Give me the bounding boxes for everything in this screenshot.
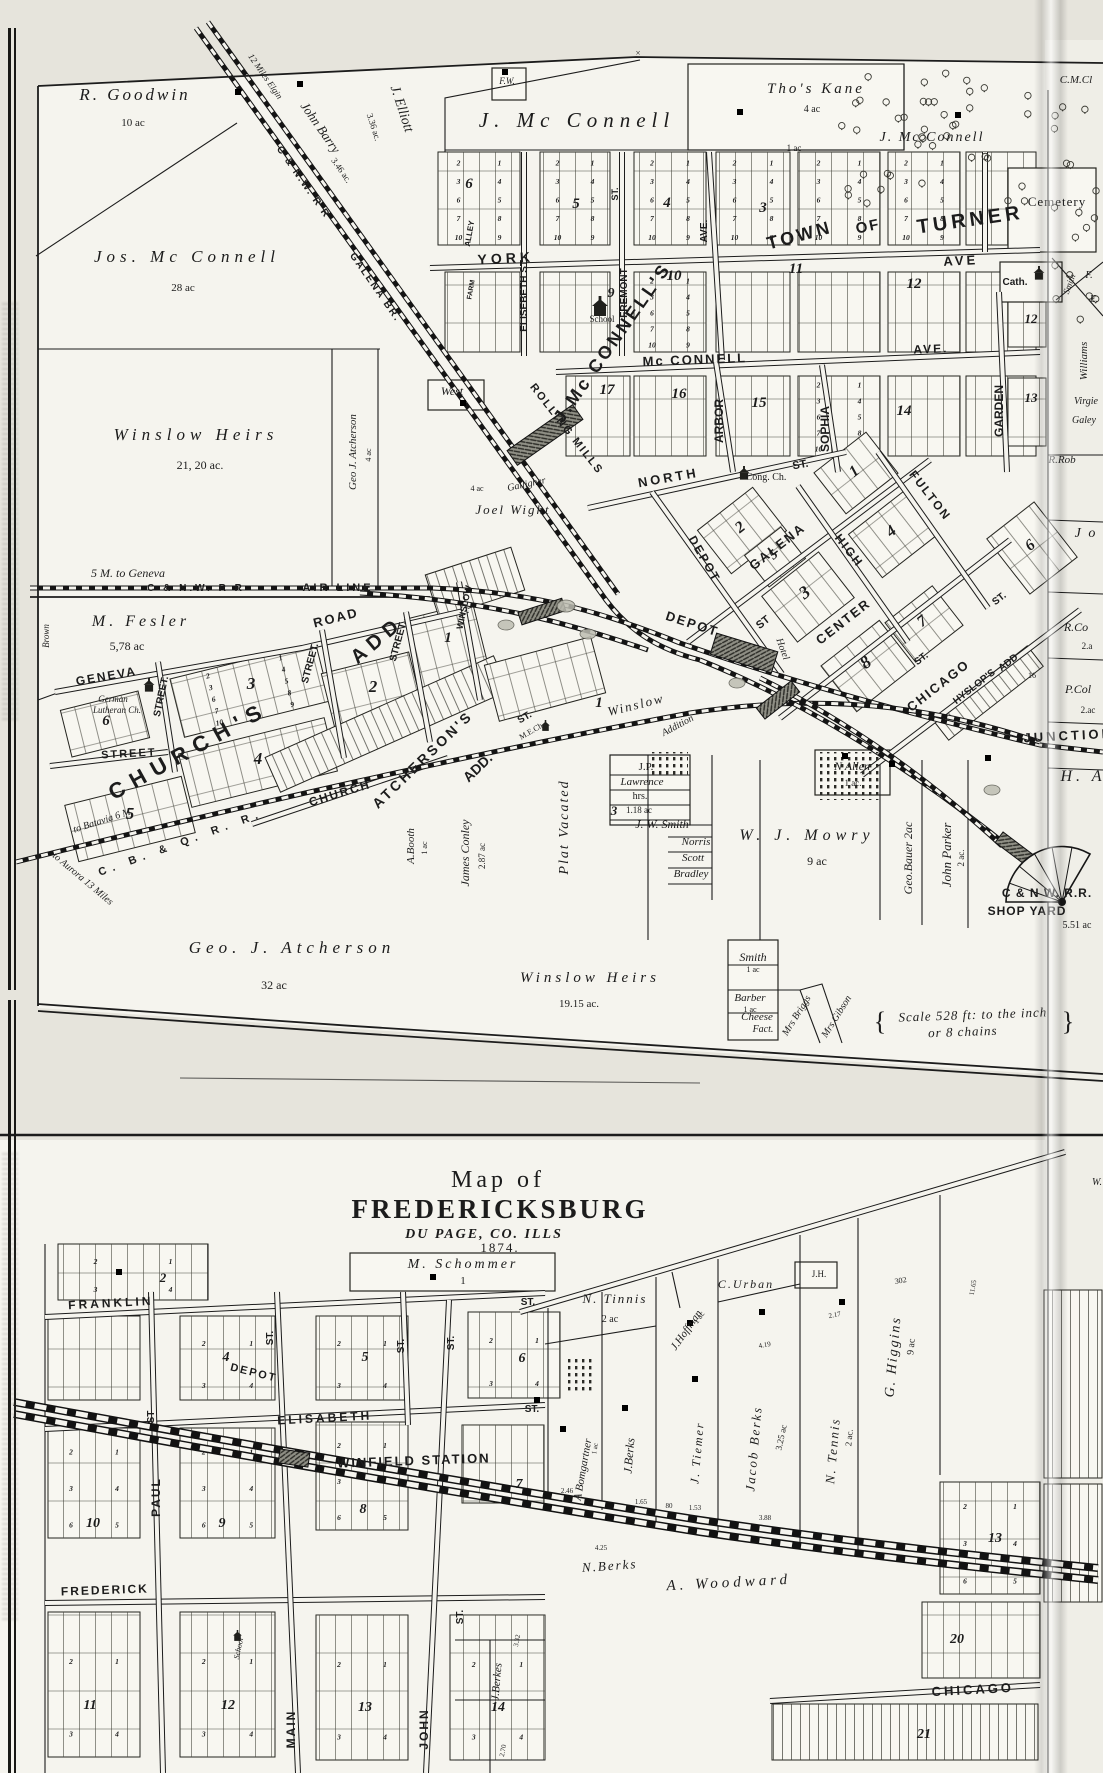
top-map-label: Winslow Heirs [520,970,660,986]
top-map-label: 28 ac [171,282,195,294]
lot-number: 1 [383,1339,387,1348]
city-block [634,376,706,456]
top-map-label: Cong. Ch. [746,472,787,483]
right-page-label: J o [1075,526,1098,541]
lot-number: 2 [68,1447,73,1456]
right-page-label: C.M.Cl [1060,74,1092,86]
top-map-label: A.Booth [405,828,417,865]
bottom-map-label: 13 [358,1700,372,1715]
top-map-label: 32 ac [261,978,287,992]
bottom-map-label: 9 [219,1516,226,1531]
city-block: 2134 [316,1615,408,1760]
bottom-map-label: 4 [222,1350,230,1365]
bottom-map-label: ST. [446,1336,457,1351]
top-map-label: Tho's Kane [767,81,865,97]
building-square [955,112,961,118]
building-square [235,89,241,95]
top-map-label: 14 [897,403,913,419]
top-map-label: 16 [1028,671,1036,680]
lot-number: 1 [858,158,862,167]
lot-number: 8 [591,214,595,223]
top-map-label: 21, 20 ac. [177,458,224,472]
top-map-label: SHOP YARD [988,904,1067,918]
bottom-map-label: ST. [265,1331,276,1346]
lot-number: 5 [1013,1577,1017,1586]
lot-number: 5 [249,1521,253,1530]
lot-number: 2 [555,158,560,167]
top-map-label: J. Mc Connell [880,130,985,145]
lot-number: 4 [248,1730,253,1739]
right-page-label: 2.ac [1081,705,1096,715]
top-map-label: German [98,694,128,704]
lot-number: 3 [336,1733,341,1742]
building-square [737,109,743,115]
bottom-map-label: 2.46 [561,1487,574,1495]
bottom-map-label: ST. [396,1339,407,1354]
lot-number: 3 [336,1477,341,1486]
top-map-label: 3 [246,674,256,693]
lot-number: 4 [1012,1539,1017,1548]
top-map-label: 1.18 ac [626,805,652,815]
bottom-map-label: M. Schommer [407,1257,519,1272]
lot-number: 1 [858,381,862,390]
lot-number: 1 [383,1660,387,1669]
top-map-label: 9 [608,286,615,301]
lot-number: 8 [770,214,774,223]
lot-number: 2 [201,1657,206,1666]
top-map-label: Fact. [752,1024,774,1035]
top-map-label: 4 ac [364,448,373,462]
lot-number: 5 [686,196,690,205]
building-square [560,1426,566,1432]
bottom-map-label: 7 [516,1477,524,1492]
lot-number: 10 [648,341,656,350]
lot-number: 6 [650,309,654,318]
map-canvas: 2134657810921346578109213465781092134657… [0,0,1103,1773]
lot-number: 4 [497,177,502,186]
lot-number: 3 [68,1730,73,1739]
top-map-label: West [441,384,464,398]
building-square [759,1309,765,1315]
top-map-label: M. Fesler [91,613,190,630]
building-square [985,755,991,761]
right-page-label: H. A [1059,768,1103,785]
top-map-label: F.W. [498,76,515,86]
lot-number: 2 [962,1502,967,1511]
top-map-label: J.P. [639,761,654,773]
top-map-label: 3 [758,200,767,216]
building-square [502,69,508,75]
top-map-label: Geo.Bauer 2ac [901,821,915,894]
lot-number: 1 [115,1657,119,1666]
top-map-label: 1 ac [420,841,429,855]
top-map-label: GARDEN [992,385,1006,437]
right-page-label: Cemetery [1028,194,1087,209]
lot-number: 3 [93,1285,98,1294]
bottom-map-label: ST [146,1411,157,1424]
top-map-label: 5 [126,804,135,823]
lot-number: 3 [816,397,821,406]
top-map-label: Cheese [741,1011,773,1023]
top-map-label: 12 [907,276,923,292]
city-block: 2134 [468,1312,560,1398]
city-block [445,272,520,352]
city-block [1008,378,1046,446]
city-block: 2134 [180,1612,275,1757]
lot-number: 4 [382,1733,387,1742]
building-square [622,1405,628,1411]
top-map-label: SOPHIA [818,406,832,452]
lot-number: 1 [498,158,502,167]
lot-number: 3 [471,1733,476,1742]
lot-number: 7 [556,214,560,223]
top-map-label: 13 [1025,390,1039,405]
top-map-label: 12 [1025,311,1039,326]
lot-number: 4 [939,177,944,186]
bottom-map-label: JOHN [417,1708,431,1749]
lot-number: 10 [554,233,562,242]
city-block [1044,1290,1102,1478]
bottom-map-label: ST. [525,1404,540,1415]
bottom-map-label: ST. [521,1297,536,1308]
top-map-label: 2 [368,677,378,696]
lot-number: 3 [201,1484,206,1493]
bottom-map-label: 10 [86,1516,100,1531]
lot-number: 2 [488,1336,493,1345]
right-page-label: Galey [1072,415,1096,426]
lot-number: 5 [115,1521,119,1530]
top-map-label: 1 ac. [845,778,862,788]
lot-number: 5 [940,196,944,205]
lot-number: 2 [471,1660,476,1669]
top-map-label: School [589,314,615,324]
top-map-label: W. J. Mowry [739,827,874,844]
lot-number: 10 [902,233,910,242]
lot-number: 4 [534,1379,539,1388]
top-map-label: Plat Vacated [557,779,572,875]
lot-number: 5 [858,413,862,422]
lot-number: 1 [249,1657,253,1666]
city-block [1044,1484,1102,1602]
lot-number: 7 [733,214,737,223]
lot-number: 6 [337,1513,341,1522]
lot-number: 4 [114,1484,119,1493]
lot-number: 4 [769,177,774,186]
top-map-label: R. Goodwin [78,85,190,104]
top-map-label: 3 [610,803,618,818]
building-square [889,761,895,767]
top-map-label: 11 [789,261,803,277]
bottom-map-label: 2 [159,1270,167,1285]
bottom-map-label: 2 ac [602,1314,619,1325]
bottom-map-label: 11 [83,1698,96,1713]
top-map-label: or 8 chains [928,1023,998,1040]
lot-number: 7 [904,214,908,223]
lot-number: 2 [201,1339,206,1348]
building-square [297,81,303,87]
lot-number: 4 [685,177,690,186]
lot-number: 4 [518,1733,523,1742]
bottom-map-label: 4.25 [595,1544,608,1552]
lot-number: 4 [382,1381,387,1390]
top-map-label: C & N.W. R R [147,583,245,594]
bottom-map-label: N. Tinnis [582,1291,648,1306]
city-block [798,272,880,352]
right-page-label: W. [1092,1177,1102,1188]
top-map-label: Joel Wight [475,502,550,517]
bottom-map-label: 1.65 [635,1498,648,1506]
lot-number: 9 [498,233,502,242]
right-page-label: P.Col [1064,682,1092,696]
right-page-label: 2.a [1082,641,1093,651]
right-page-label: R.Co [1063,620,1088,634]
bottom-map-label: 6 [519,1351,526,1366]
lot-number: 1 [519,1660,523,1669]
lot-number: 10 [648,233,656,242]
lot-number: 2 [68,1657,73,1666]
top-map-label: 15 [752,395,768,411]
bottom-map-label: 1.53 [689,1504,702,1512]
lot-number: 3 [68,1484,73,1493]
lot-number: 2 [456,158,461,167]
lot-number: 1 [770,158,774,167]
city-block: 2134 [58,1244,208,1300]
lot-number: 5 [686,309,690,318]
top-map-label: 9 ac [807,854,827,868]
lot-number: 4 [857,177,862,186]
lot-number: 3 [816,177,821,186]
lot-number: 8 [686,214,690,223]
lot-number: 10 [455,233,463,242]
building-square [839,1299,845,1305]
lot-number: 2 [336,1339,341,1348]
lot-number: 3 [456,177,461,186]
top-map-label: James Conley [458,819,472,887]
lot-number: 2 [816,158,821,167]
lot-number: 3 [962,1539,967,1548]
lot-number: 3 [555,177,560,186]
top-map-label: hrs. [633,791,648,802]
top-map-label: Bradley [674,868,709,880]
top-map-label: 4 [253,749,263,768]
top-map-label: 10 ac [121,117,145,129]
lot-number: 6 [904,196,908,205]
right-page-label: Williams [1078,342,1090,381]
lot-number: 9 [591,233,595,242]
building-square [692,1376,698,1382]
right-page-label: Virgie [1074,396,1098,407]
bottom-map-label: ST. [455,1610,466,1625]
lot-number: 2 [732,158,737,167]
lot-number: 1 [591,158,595,167]
bottom-map-label: 2 ac. [843,1429,854,1447]
lot-number: 8 [498,214,502,223]
top-map-label: 4 ac [804,104,821,115]
top-map-label: 19.15 ac. [559,998,599,1010]
top-map-label: Lutheran Ch. [92,705,141,715]
lot-number: 6 [733,196,737,205]
top-map-label: 1 [444,630,452,646]
top-map-label: Geo J. Atcherson [347,414,359,490]
top-map-label: John Parker [939,822,954,888]
lot-number: 9 [686,233,690,242]
lot-number: 4 [590,177,595,186]
lot-number: 2 [903,158,908,167]
lot-number: 4 [248,1484,253,1493]
building-square [534,1397,540,1403]
top-map-label: 6 [102,713,110,729]
lot-number: 6 [69,1521,73,1530]
top-map-label: ELISEBETH ST. [519,258,530,332]
lot-number: 1 [169,1257,173,1266]
lot-number: 6 [457,196,461,205]
top-map-label: 1 ac [787,143,802,153]
lot-number: 5 [591,196,595,205]
lot-number: 6 [556,196,560,205]
bottom-map-label: 1874. [480,1240,519,1255]
bottom-map-label: 8 [360,1502,367,1517]
top-map-label: } [1062,1007,1074,1036]
lot-number: 10 [731,233,739,242]
lot-number: 2 [649,158,654,167]
city-block [922,1602,1040,1678]
lot-number: 1 [686,277,690,286]
bottom-map-label: FREDERICKSBURG [351,1194,648,1224]
bottom-map-label: 13 [988,1531,1002,1546]
city-block: 21346578109 [438,152,520,245]
building-square [430,1274,436,1280]
lot-number: 3 [649,177,654,186]
stipple-patch [568,1356,594,1392]
lot-number: 2 [336,1441,341,1450]
lot-number: 3 [732,177,737,186]
lot-number: 4 [685,293,690,302]
bottom-map-label: 3.88 [759,1514,772,1522]
building-square [116,1269,122,1275]
bottom-map-label: C.Urban [718,1277,774,1291]
top-map-label: Barber [734,992,766,1004]
bottom-map-label: 21 [916,1727,931,1742]
lot-number: 3 [201,1381,206,1390]
lot-number: 5 [383,1513,387,1522]
bottom-map-label: J.H. [812,1269,827,1279]
city-block [772,1704,1038,1760]
top-map-label: 2 ac. [956,850,966,867]
top-map-label: × [635,48,640,58]
lot-number: 2 [93,1257,98,1266]
top-map-label: Lawrence [620,776,664,788]
lot-number: 3 [201,1730,206,1739]
bottom-map-label: Map of [451,1167,545,1193]
lot-number: 1 [383,1441,387,1450]
top-map-label: 4 [662,195,671,211]
stipple-patch [648,752,688,778]
lot-number: 3 [488,1379,493,1388]
lot-number: 4 [114,1730,119,1739]
top-map-label: Scott [682,852,705,864]
top-map-label: Norris [681,836,711,848]
top-map-label: 1 ac [746,965,760,974]
top-map-label: N Allen [833,759,870,773]
bottom-map-label: 12 [221,1698,235,1713]
bottom-map-label: 5 [362,1350,369,1365]
lot-number: 6 [202,1521,206,1530]
top-map-label: 5.51 ac [1063,920,1092,931]
map-sheet: Map of FREDERICKSBURG DU PAGE, CO. ILLS … [0,0,1103,1773]
top-map-label: 16 [672,386,688,402]
lot-number: 4 [168,1285,173,1294]
lot-number: 6 [817,196,821,205]
top-map-label: 2.87 ac [477,843,487,869]
lot-number: 7 [457,214,461,223]
lot-number: 2 [336,1660,341,1669]
right-page-label: R.Rob [1047,454,1076,466]
bottom-map-label: 14 [491,1700,505,1715]
lot-number: 5 [770,196,774,205]
top-map-label: AVE. [699,219,710,242]
top-map-label: Winslow Heirs [114,425,279,444]
city-block [716,272,790,352]
lot-number: 1 [535,1336,539,1345]
top-map-label: Geo. J. Atcherson [189,938,396,957]
lot-number: 3 [336,1381,341,1390]
top-map-label: AIR LINE [302,582,373,594]
top-map-label: 5 [572,196,580,212]
lot-number: 1 [686,158,690,167]
lot-number: 1 [940,158,944,167]
right-page-label: Cath. [1003,277,1028,288]
lot-number: 1 [1013,1502,1017,1511]
bottom-map-label: MAIN [284,1710,298,1749]
top-map-label: ST. [610,187,620,200]
lot-number: 4 [248,1381,253,1390]
top-map-label: { [874,1007,886,1036]
bottom-map-label: PAUL [149,1477,163,1517]
right-page-label: F. [1084,270,1092,281]
top-map-label: J. W. Smith [635,817,689,831]
lot-number: 6 [963,1577,967,1586]
bottom-map-label: 9 ac [905,1338,917,1356]
top-map-label: AVE. [913,341,949,356]
bottom-map-label: 1 [460,1275,466,1287]
top-map-label: 5,78 ac [110,639,145,653]
city-block [48,1316,140,1400]
lot-number: 4 [857,397,862,406]
top-map-label: ARBOR [712,399,726,443]
top-map-label: C & N W. R.R. [1002,886,1092,900]
top-map-label: Jos. Mc Connell [94,247,280,266]
top-map-label: 17 [600,382,616,398]
city-block: 2134 [48,1612,140,1757]
top-map-label: Brown [41,624,51,648]
top-map-label: 1 [595,695,603,711]
lot-number: 1 [115,1447,119,1456]
lot-number: 5 [858,196,862,205]
lot-number: 2 [816,381,821,390]
top-map-label: 10 [667,268,683,284]
top-map-label: AVE [943,252,979,269]
top-map-label: 6 [465,176,473,192]
lot-number: 6 [650,196,654,205]
bottom-map-label: 20 [949,1632,964,1647]
top-map-label: J. Mc Connell [479,108,675,132]
lot-number: 1 [249,1339,253,1348]
lot-number: 3 [903,177,908,186]
lot-number: 7 [650,325,654,334]
top-map-label: 5 M. to Geneva [91,566,165,580]
top-map-label: 4 ac [470,484,484,493]
building-square [460,400,466,406]
